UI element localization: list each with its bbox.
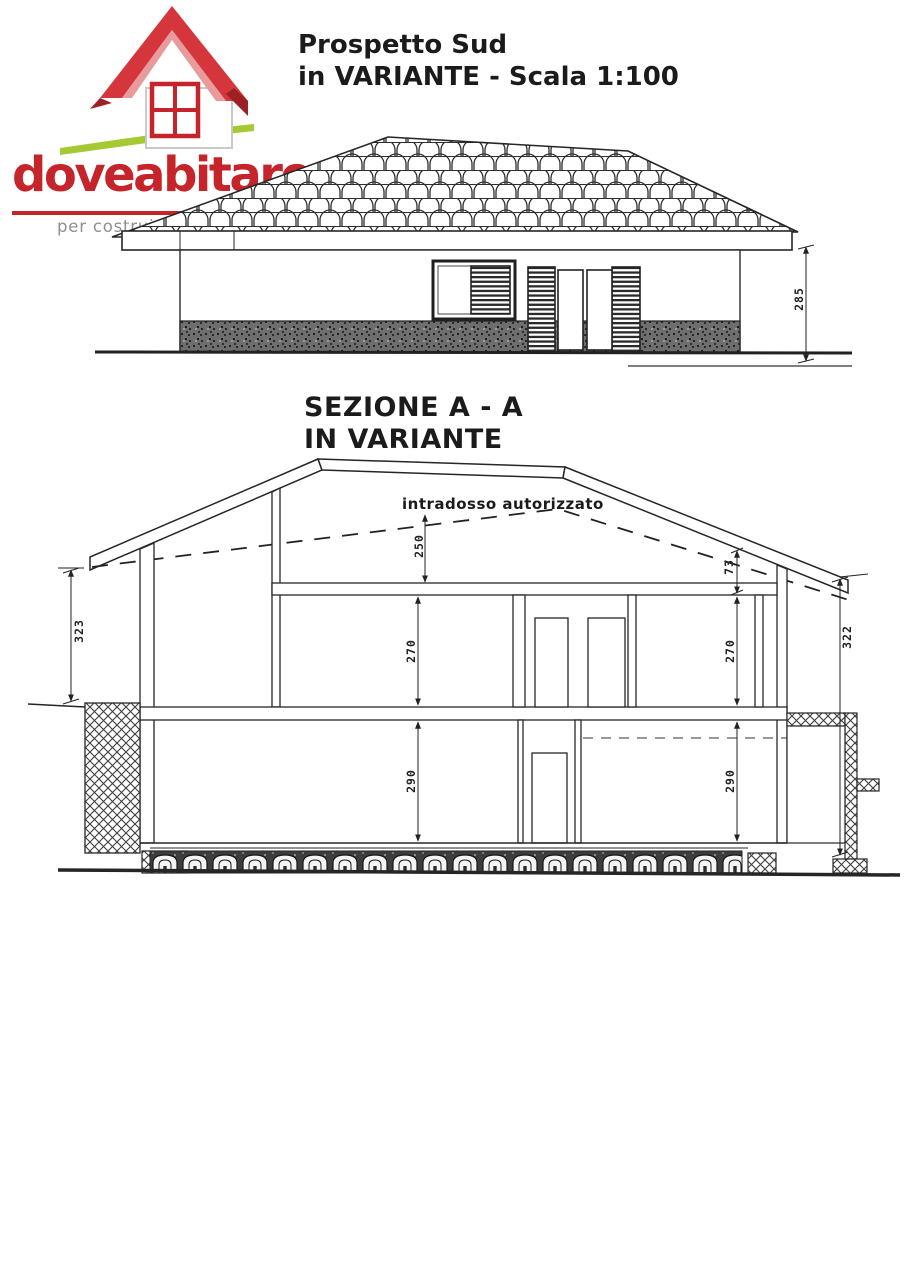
slab-floor	[140, 707, 787, 720]
wall-gf-1	[518, 720, 523, 843]
elevation-stone-base	[180, 321, 740, 352]
dim-label-322: 322	[840, 625, 854, 649]
terrain-line-left	[28, 704, 85, 707]
door-gf	[532, 753, 567, 843]
annex-right-wall	[845, 713, 857, 859]
elevation-ground-line	[95, 352, 852, 353]
dim-label-290-center: 290	[404, 769, 418, 793]
wall-exterior-right	[777, 565, 787, 843]
intrados-annotation: intradosso autorizzato	[402, 495, 604, 513]
annex-top-band	[787, 713, 845, 726]
elevation-drawing	[0, 115, 904, 375]
section-title-line1: SEZIONE A - A	[304, 392, 523, 424]
slab-ceiling	[272, 583, 777, 595]
wall-ff-3	[755, 595, 763, 707]
logo-roof-left-flap	[90, 98, 112, 109]
section-title: SEZIONE A - A IN VARIANTE	[304, 392, 523, 456]
annex-room	[787, 726, 845, 843]
tick	[840, 574, 868, 577]
dim-label-270-center: 270	[404, 639, 418, 663]
footing-block-right	[748, 853, 776, 873]
wall-exterior-left	[140, 543, 154, 843]
section-title-line2: IN VARIANTE	[304, 424, 523, 456]
door-ff-2	[588, 618, 625, 707]
foundation-left	[85, 703, 140, 853]
dim-label-290-right: 290	[723, 769, 737, 793]
section-dim-lines	[58, 515, 868, 857]
section-drawing	[0, 455, 904, 895]
dim-label-250: 250	[412, 534, 426, 558]
wall-ff-2	[628, 595, 636, 707]
elevation-eave-band	[122, 231, 792, 250]
wall-ff-1	[513, 595, 525, 707]
dim-label-270-right: 270	[723, 639, 737, 663]
elevation-roof	[112, 137, 798, 237]
section-structure	[140, 488, 787, 843]
annex-ledge	[857, 779, 879, 791]
dim-label-73: 73	[722, 559, 736, 575]
elevation-title-line1: Prospetto Sud	[298, 30, 679, 62]
elevation-window	[433, 261, 515, 319]
wall-gf-2	[575, 720, 581, 843]
section-foundation	[28, 703, 900, 875]
scanned-plan-page: doveabitare per costruire il tuo futuro …	[0, 0, 904, 1280]
elevation-title-line2: in VARIANTE - Scala 1:100	[298, 62, 679, 94]
annex-footing	[833, 859, 867, 873]
dim-label-323: 323	[72, 619, 86, 643]
dim-label-285: 285	[792, 287, 806, 311]
door-ff-1	[535, 618, 568, 707]
wall-interior-tall	[272, 488, 280, 707]
elevation-title: Prospetto Sud in VARIANTE - Scala 1:100	[298, 30, 679, 93]
